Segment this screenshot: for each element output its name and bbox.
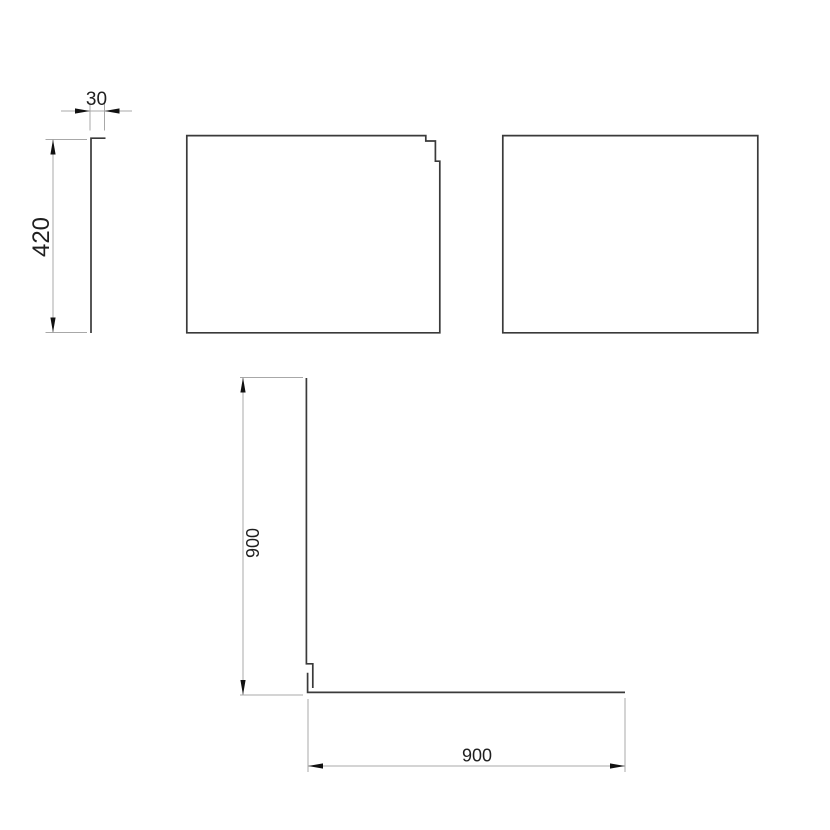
base-arrow-left-icon	[308, 763, 323, 768]
l-section-upright-outline	[306, 378, 312, 688]
view-plain-panel	[503, 136, 758, 333]
view-l-section: 900 900	[240, 378, 625, 773]
thickness-dimension-label: 30	[86, 89, 107, 110]
view-notched-panel	[187, 136, 440, 333]
technical-drawing-canvas: 30 420	[0, 0, 830, 830]
dimension-panel-height: 420	[28, 140, 87, 333]
dimension-base-length: 900	[308, 698, 625, 772]
upright-arrow-top-icon	[240, 378, 245, 393]
base-dimension-label: 900	[462, 746, 492, 766]
notched-panel-outline	[187, 136, 440, 333]
upright-arrow-bottom-icon	[240, 680, 245, 695]
base-arrow-right-icon	[610, 763, 625, 768]
dimension-thickness: 30	[61, 89, 132, 131]
panel-height-dimension-label: 420	[28, 217, 55, 257]
side-profile-outline	[91, 138, 106, 333]
panel-height-arrow-top-icon	[50, 140, 55, 155]
upright-dimension-label: 900	[243, 528, 263, 558]
plain-panel-outline	[503, 136, 758, 333]
panel-height-arrow-bottom-icon	[50, 318, 55, 333]
dimension-upright-length: 900	[240, 378, 303, 696]
view-side-profile: 30 420	[28, 89, 132, 333]
l-section-base-outline	[308, 673, 625, 693]
drawing-svg: 30 420	[0, 0, 830, 830]
